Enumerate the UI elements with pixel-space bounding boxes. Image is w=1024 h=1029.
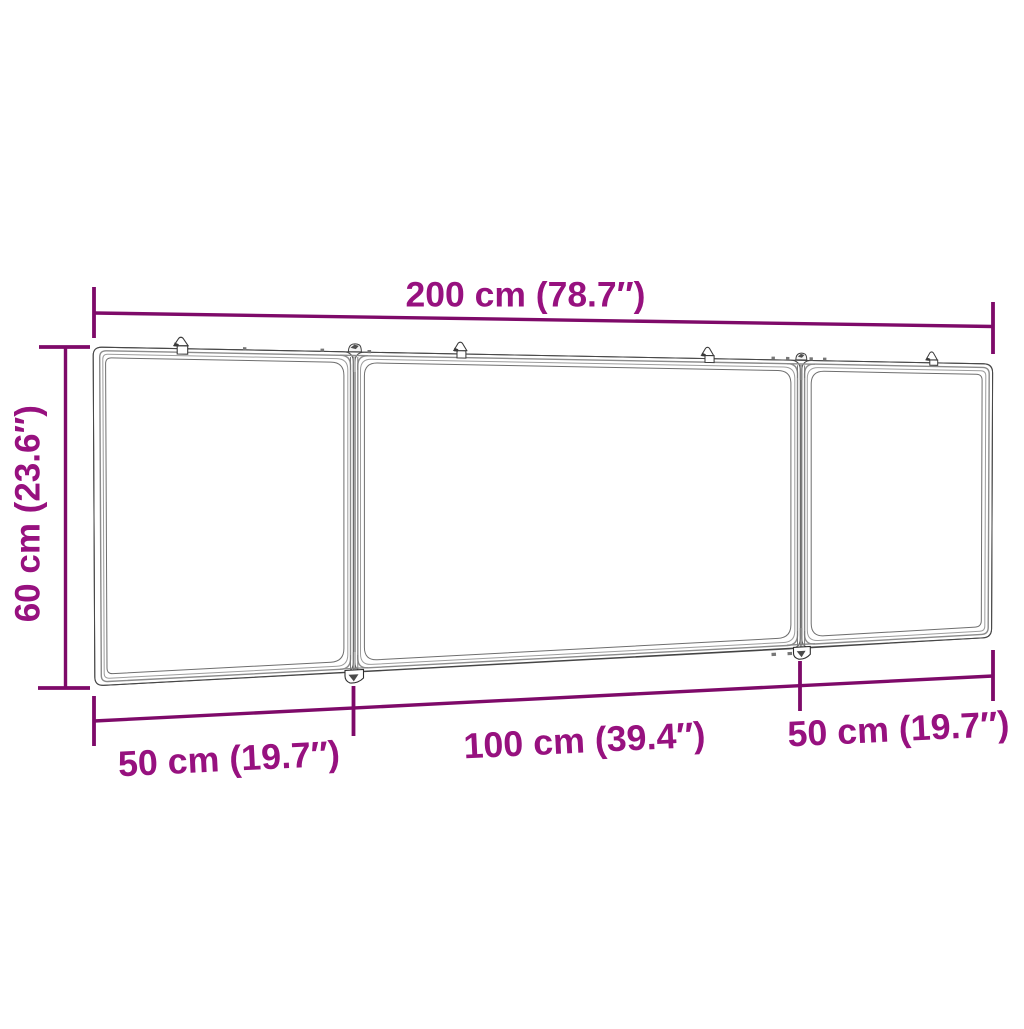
svg-text:60 cm (23.6″): 60 cm (23.6″)	[9, 405, 48, 622]
svg-text:200 cm (78.7″): 200 cm (78.7″)	[405, 275, 645, 315]
